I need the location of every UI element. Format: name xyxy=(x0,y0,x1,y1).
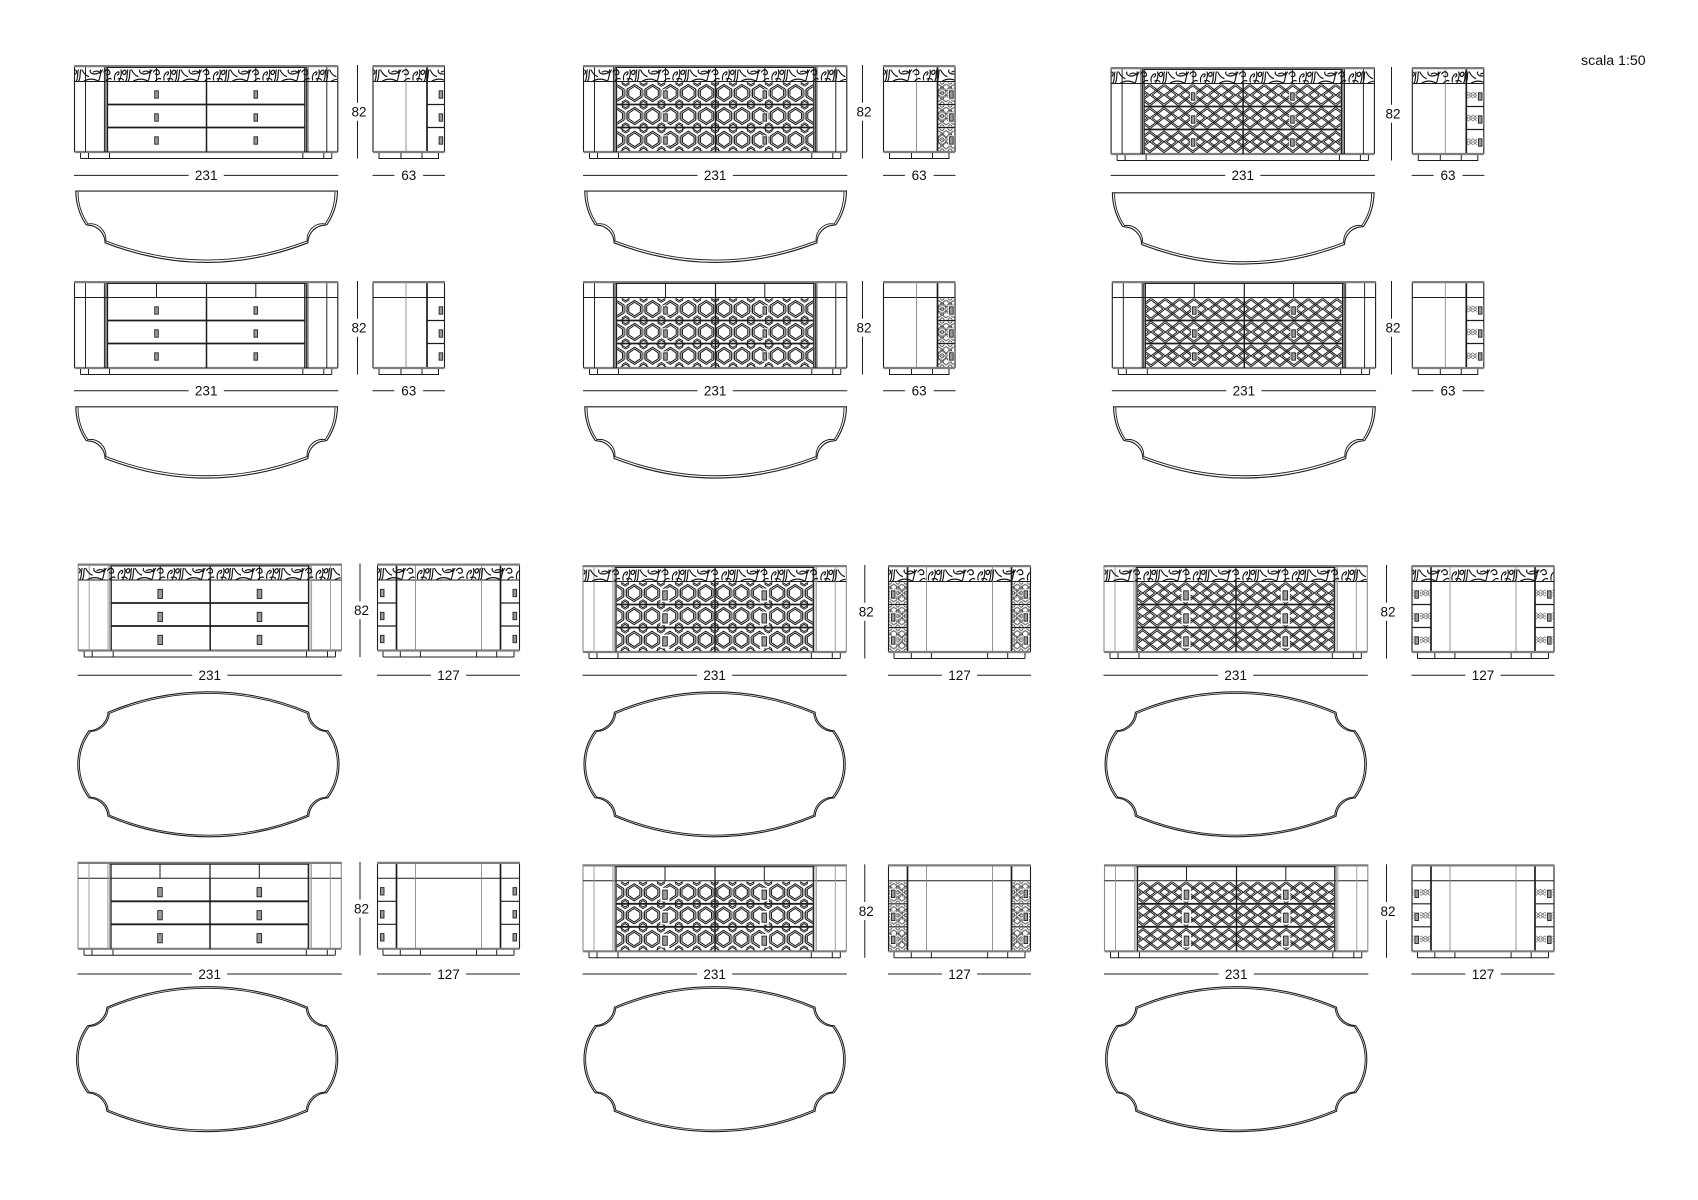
svg-text:231: 231 xyxy=(704,384,727,399)
svg-text:82: 82 xyxy=(1385,107,1400,122)
svg-text:127: 127 xyxy=(437,668,460,683)
svg-text:82: 82 xyxy=(351,105,366,120)
svg-text:82: 82 xyxy=(859,904,874,919)
svg-text:127: 127 xyxy=(948,967,971,982)
svg-text:82: 82 xyxy=(354,901,369,916)
svg-text:82: 82 xyxy=(1380,605,1395,620)
svg-text:scala 1:50: scala 1:50 xyxy=(1581,53,1646,69)
svg-text:231: 231 xyxy=(195,168,218,183)
svg-text:82: 82 xyxy=(1380,904,1395,919)
svg-text:231: 231 xyxy=(195,384,218,399)
svg-text:231: 231 xyxy=(703,668,726,683)
svg-text:82: 82 xyxy=(856,105,871,120)
svg-text:231: 231 xyxy=(1233,384,1256,399)
svg-text:63: 63 xyxy=(1440,168,1455,183)
svg-text:127: 127 xyxy=(437,967,460,982)
svg-text:127: 127 xyxy=(1472,967,1495,982)
svg-text:63: 63 xyxy=(1440,384,1455,399)
svg-text:231: 231 xyxy=(199,668,222,683)
svg-text:63: 63 xyxy=(912,168,927,183)
svg-text:82: 82 xyxy=(351,321,366,336)
svg-text:231: 231 xyxy=(1225,967,1248,982)
svg-text:63: 63 xyxy=(401,168,416,183)
svg-text:231: 231 xyxy=(198,967,221,982)
svg-text:231: 231 xyxy=(703,967,726,982)
svg-text:82: 82 xyxy=(856,321,871,336)
svg-text:63: 63 xyxy=(912,384,927,399)
svg-text:82: 82 xyxy=(354,603,369,618)
svg-text:231: 231 xyxy=(1232,168,1255,183)
svg-text:231: 231 xyxy=(1224,668,1247,683)
svg-text:82: 82 xyxy=(1385,321,1400,336)
svg-text:63: 63 xyxy=(401,384,416,399)
svg-text:127: 127 xyxy=(1472,668,1495,683)
svg-text:127: 127 xyxy=(948,668,971,683)
svg-text:82: 82 xyxy=(859,605,874,620)
svg-text:231: 231 xyxy=(704,168,727,183)
